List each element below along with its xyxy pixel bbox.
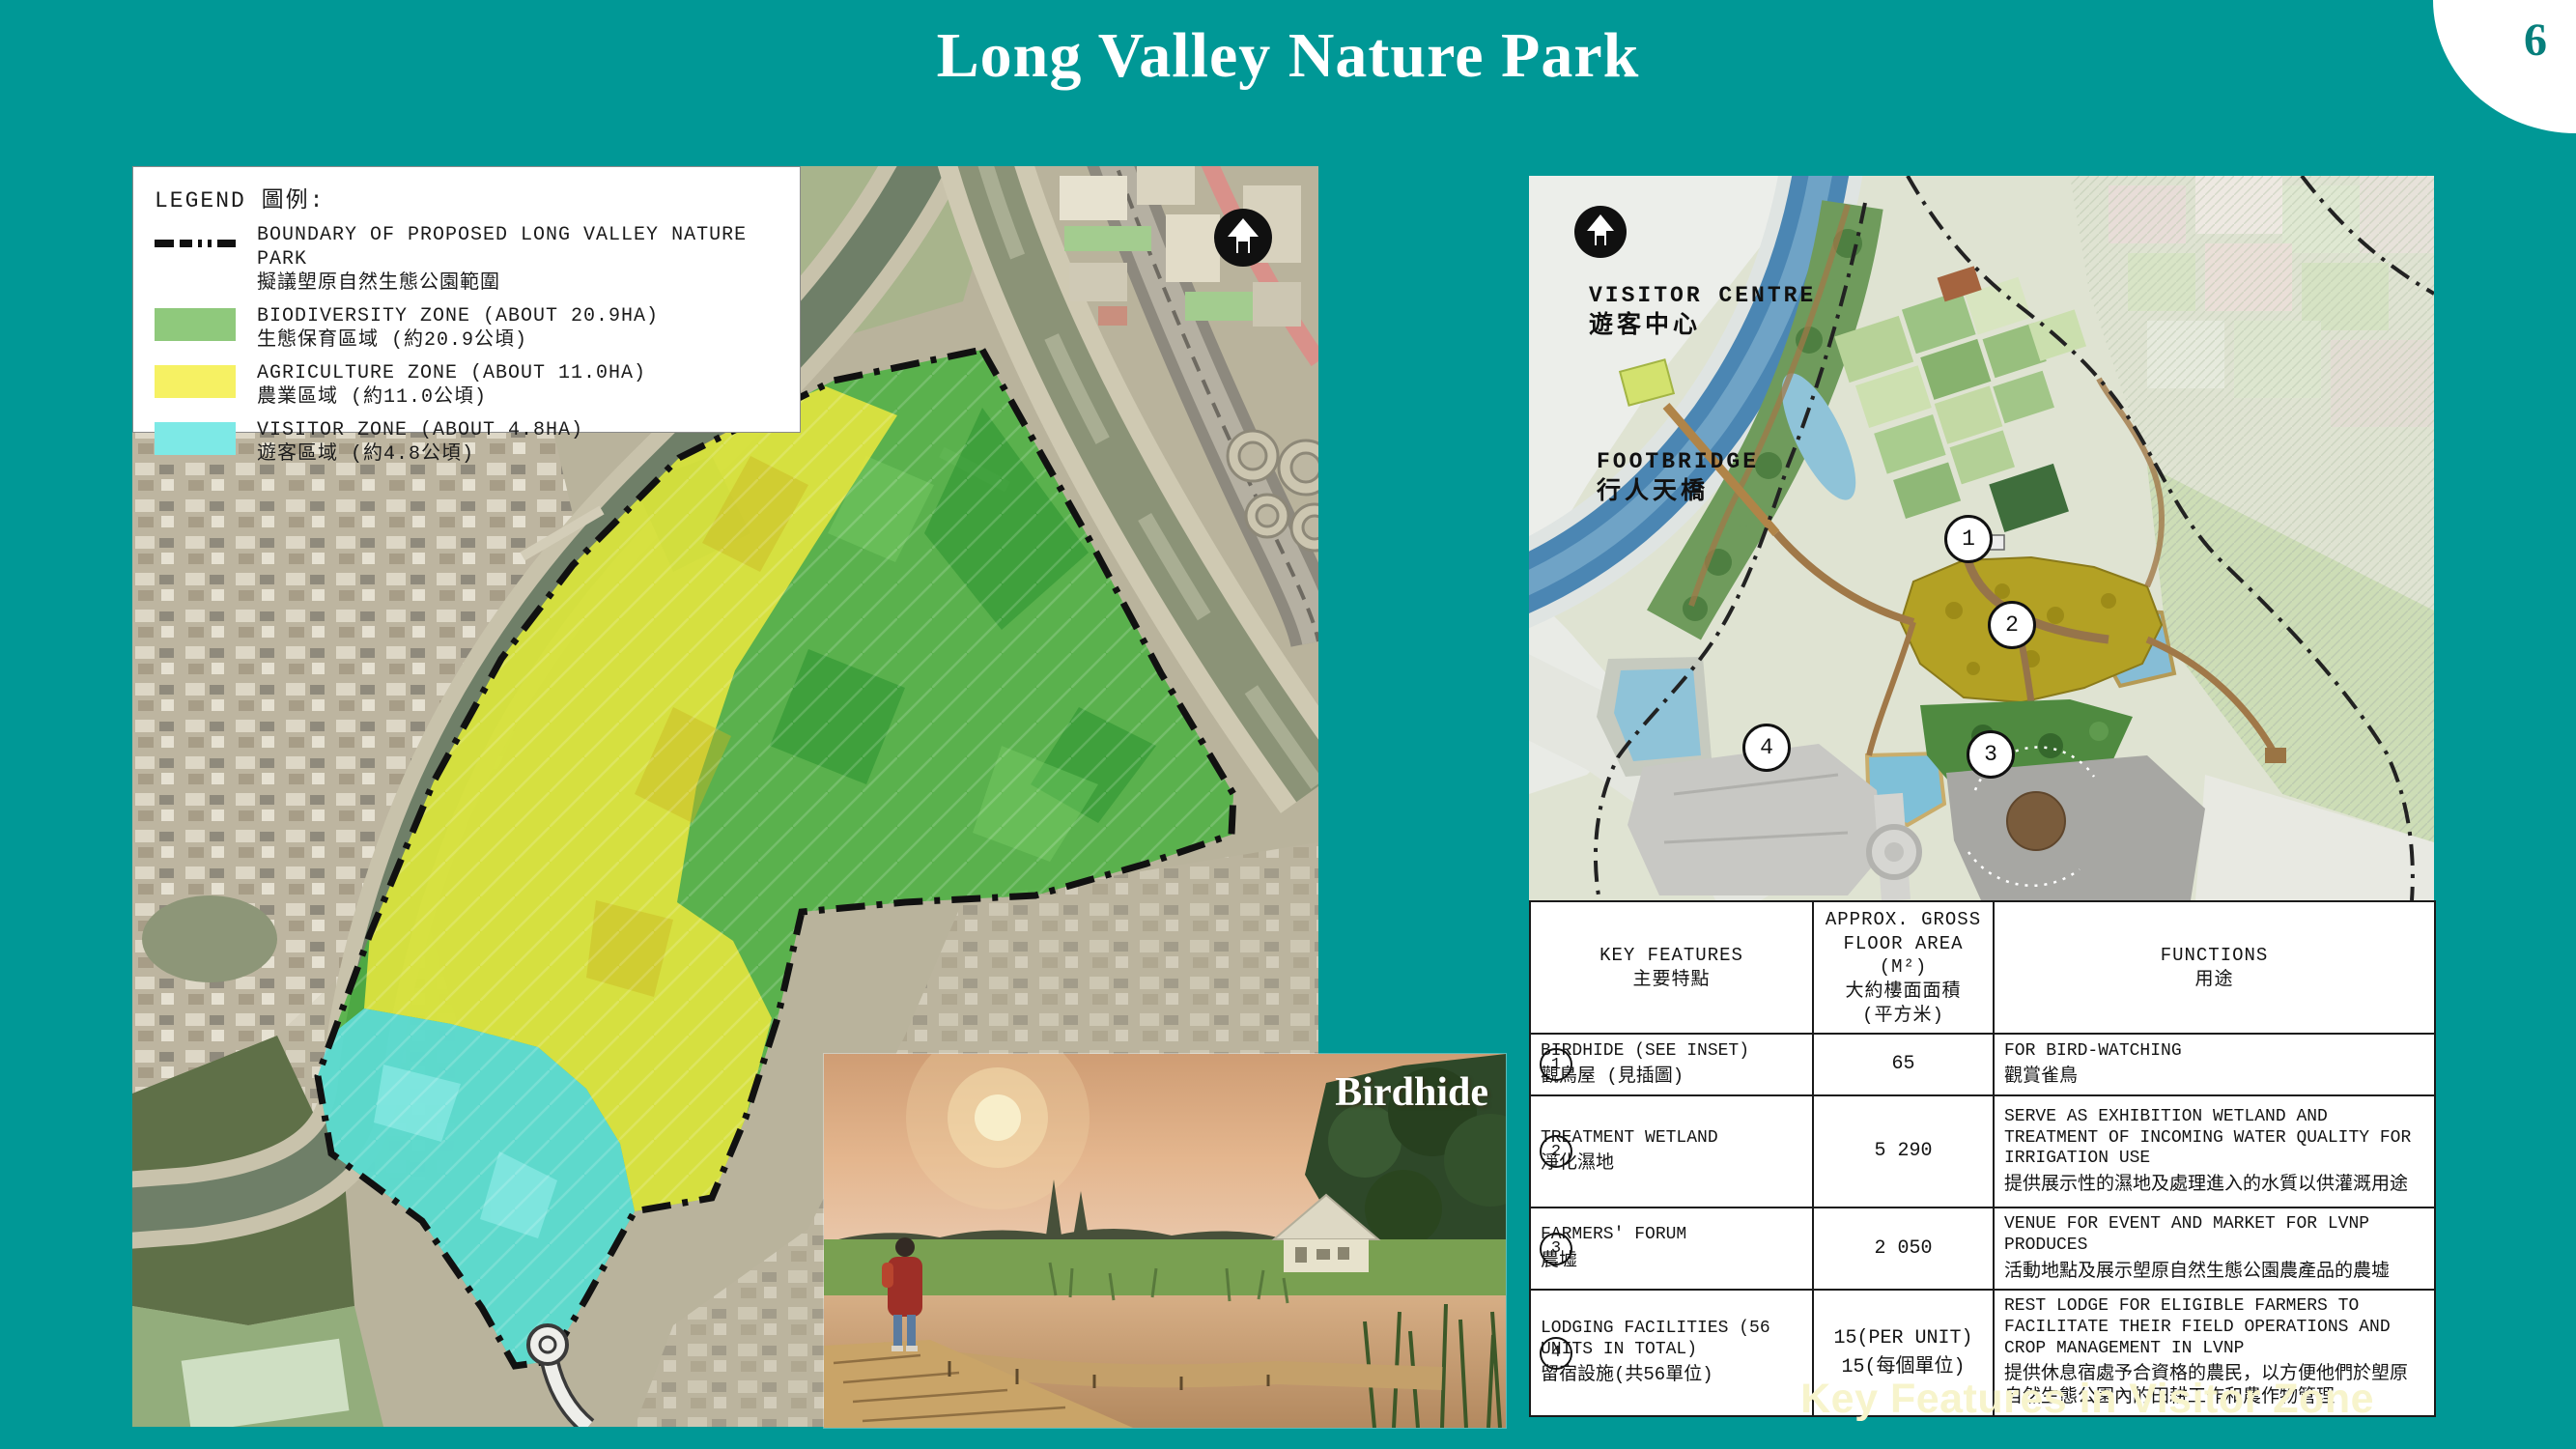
north-arrow-icon [1214, 209, 1272, 267]
legend-label-en: BIODIVERSITY ZONE (ABOUT 20.9HA) [257, 304, 659, 328]
function-en: SERVE AS EXHIBITION WETLAND AND TREATMEN… [2004, 1107, 2424, 1170]
visitor-centre-label-zh: 遊客中心 [1589, 311, 1816, 343]
feature-cell: 1 BIRDHIDE (SEE INSET) 觀鳥屋 (見插圖) [1530, 1034, 1813, 1095]
legend-label: BOUNDARY OF PROPOSED LONG VALLEY NATURE … [257, 223, 800, 296]
feature-en: LODGING FACILITIES (56 UNITS IN TOTAL) [1541, 1319, 1802, 1360]
area-cell: 2 050 [1813, 1207, 1994, 1290]
row-number-badge: 1 [1540, 1048, 1572, 1081]
legend-label-zh: 農業區域 (約11.0公頃) [257, 385, 646, 410]
legend-item-biodiversity: BIODIVERSITY ZONE (ABOUT 20.9HA) 生態保育區域 … [155, 304, 800, 353]
key-features-table: KEY FEATURES 主要特點 APPROX. GROSS FLOOR AR… [1529, 900, 2436, 1417]
function-en: FOR BIRD-WATCHING [2004, 1041, 2424, 1063]
area-value: 5 290 [1824, 1137, 1983, 1166]
header-key-features: KEY FEATURES 主要特點 [1530, 901, 1813, 1034]
area-value: 15(PER UNIT) [1824, 1324, 1983, 1353]
page-title: Long Valley Nature Park [0, 19, 2576, 93]
path-node [2265, 748, 2286, 763]
feature-en: FARMERS' FORUM [1541, 1225, 1802, 1246]
header-floor-area: APPROX. GROSS FLOOR AREA (M²) 大約樓面面積 (平方… [1813, 901, 1994, 1034]
function-en: VENUE FOR EVENT AND MARKET FOR LVNP PROD… [2004, 1214, 2424, 1256]
feature-zh: 淨化濕地 [1541, 1152, 1802, 1176]
row-number-badge: 2 [1540, 1135, 1572, 1168]
boundary-line-swatch [155, 239, 236, 248]
legend-label-zh: 擬議塱原自然生態公園範圍 [257, 271, 800, 296]
legend-item-agriculture: AGRICULTURE ZONE (ABOUT 11.0HA) 農業區域 (約1… [155, 361, 800, 410]
header-text: KEY FEATURES [1541, 944, 1802, 968]
function-zh: 觀賞雀鳥 [2004, 1065, 2424, 1089]
legend-label: AGRICULTURE ZONE (ABOUT 11.0HA) 農業區域 (約1… [257, 361, 646, 410]
visitor-centre-label: VISITOR CENTRE 遊客中心 [1589, 282, 1816, 342]
legend-label-en: VISITOR ZONE (ABOUT 4.8HA) [257, 418, 583, 442]
legend-item-boundary: BOUNDARY OF PROPOSED LONG VALLEY NATURE … [155, 223, 800, 296]
green-swatch [155, 308, 236, 341]
function-cell: VENUE FOR EVENT AND MARKET FOR LVNP PROD… [1994, 1207, 2435, 1290]
function-cell: SERVE AS EXHIBITION WETLAND AND TREATMEN… [1994, 1095, 2435, 1207]
table-row: 1 BIRDHIDE (SEE INSET) 觀鳥屋 (見插圖) 65 FOR … [1530, 1034, 2435, 1095]
feature-cell: 2 TREATMENT WETLAND 淨化濕地 [1530, 1095, 1813, 1207]
birdhide-photo: Birdhide [823, 1053, 1507, 1429]
feature-cell: 3 FARMERS' FORUM 農墟 [1530, 1207, 1813, 1290]
visitor-zone-plan: VISITOR CENTRE 遊客中心 FOOTBRIDGE 行人天橋 1 2 … [1529, 176, 2434, 900]
legend-label: VISITOR ZONE (ABOUT 4.8HA) 遊客區域 (約4.8公頃) [257, 418, 583, 467]
yellow-swatch [155, 365, 236, 398]
feature-en: TREATMENT WETLAND [1541, 1128, 1802, 1150]
table-row: 3 FARMERS' FORUM 農墟 2 050 VENUE FOR EVEN… [1530, 1207, 2435, 1290]
legend-item-visitor: VISITOR ZONE (ABOUT 4.8HA) 遊客區域 (約4.8公頃) [155, 418, 800, 467]
footbridge-label: FOOTBRIDGE 行人天橋 [1597, 448, 1759, 508]
row-number-badge: 3 [1540, 1233, 1572, 1265]
legend-label-zh: 遊客區域 (約4.8公頃) [257, 442, 583, 467]
header-text: 用途 [2004, 968, 2424, 992]
function-zh: 活動地點及展示塱原自然生態公園農產品的農墟 [2004, 1261, 2424, 1284]
cyan-swatch [155, 422, 236, 455]
legend-label: BIODIVERSITY ZONE (ABOUT 20.9HA) 生態保育區域 … [257, 304, 659, 353]
slide: { "page": {"title": "Long Valley Nature … [0, 0, 2576, 1449]
page-corner-shape [2433, 0, 2576, 133]
page-number: 6 [2524, 14, 2547, 67]
header-text: 主要特點 [1541, 968, 1802, 992]
feature-cell: 4 LODGING FACILITIES (56 UNITS IN TOTAL)… [1530, 1290, 1813, 1415]
header-text: FLOOR AREA (M²) [1824, 932, 1983, 980]
birdhide-photo-label: Birdhide [1335, 1069, 1488, 1116]
feature-en: BIRDHIDE (SEE INSET) [1541, 1041, 1802, 1063]
feature-zh: 觀鳥屋 (見插圖) [1541, 1065, 1802, 1089]
feature-zh: 農墟 [1541, 1250, 1802, 1273]
legend: LEGEND 圖例: BOUNDARY OF PROPOSED LONG VAL… [132, 166, 801, 433]
legend-heading: LEGEND 圖例: [155, 181, 800, 213]
visitor-centre-label-en: VISITOR CENTRE [1589, 282, 1816, 311]
feature-zh: 留宿設施(共56單位) [1541, 1364, 1802, 1387]
legend-label-en: AGRICULTURE ZONE (ABOUT 11.0HA) [257, 361, 646, 385]
table-header-row: KEY FEATURES 主要特點 APPROX. GROSS FLOOR AR… [1530, 901, 2435, 1034]
area-value: 65 [1824, 1050, 1983, 1079]
legend-label-en: BOUNDARY OF PROPOSED LONG VALLEY NATURE … [257, 223, 800, 271]
marker-4: 4 [1742, 724, 1791, 772]
marker-2: 2 [1988, 601, 2036, 649]
function-zh: 提供展示性的濕地及處理進入的水質以供灌溉用途 [2004, 1174, 2424, 1197]
photo-marsh [824, 1239, 1506, 1299]
table-row: 2 TREATMENT WETLAND 淨化濕地 5 290 SERVE AS … [1530, 1095, 2435, 1207]
area-value: 2 050 [1824, 1235, 1983, 1264]
area-cell: 5 290 [1813, 1095, 1994, 1207]
header-functions: FUNCTIONS 用途 [1994, 901, 2435, 1034]
function-en: REST LODGE FOR ELIGIBLE FARMERS TO FACIL… [2004, 1296, 2424, 1359]
row-number-badge: 4 [1540, 1337, 1572, 1370]
footbridge-label-zh: 行人天橋 [1597, 477, 1759, 509]
header-text: 大約樓面面積 [1824, 980, 1983, 1004]
function-cell: FOR BIRD-WATCHING 觀賞雀鳥 [1994, 1034, 2435, 1095]
header-text: APPROX. GROSS [1824, 908, 1983, 932]
marker-1: 1 [1944, 515, 1993, 563]
north-arrow-icon [1574, 206, 1627, 258]
marker-3: 3 [1967, 730, 2015, 779]
header-text: FUNCTIONS [2004, 944, 2424, 968]
footbridge-label-en: FOOTBRIDGE [1597, 448, 1759, 477]
header-text: (平方米) [1824, 1004, 1983, 1028]
legend-label-zh: 生態保育區域 (約20.9公頃) [257, 328, 659, 353]
area-cell: 65 [1813, 1034, 1994, 1095]
section-caption: Key Features in Visitor Zone [1800, 1376, 2374, 1423]
